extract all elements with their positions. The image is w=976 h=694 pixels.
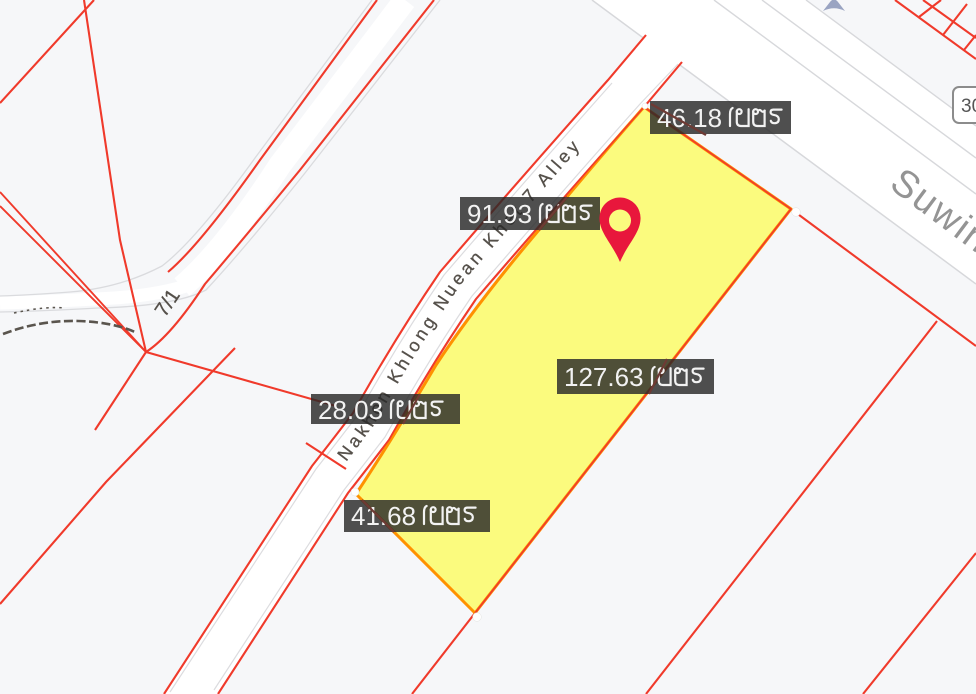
svg-text:28.03: 28.03 <box>318 395 383 425</box>
svg-text:46.18: 46.18 <box>657 103 722 133</box>
svg-text:91.93: 91.93 <box>467 199 532 229</box>
svg-text:127.63: 127.63 <box>564 362 644 392</box>
svg-text:41.68: 41.68 <box>351 501 416 531</box>
svg-text:30: 30 <box>961 96 976 117</box>
